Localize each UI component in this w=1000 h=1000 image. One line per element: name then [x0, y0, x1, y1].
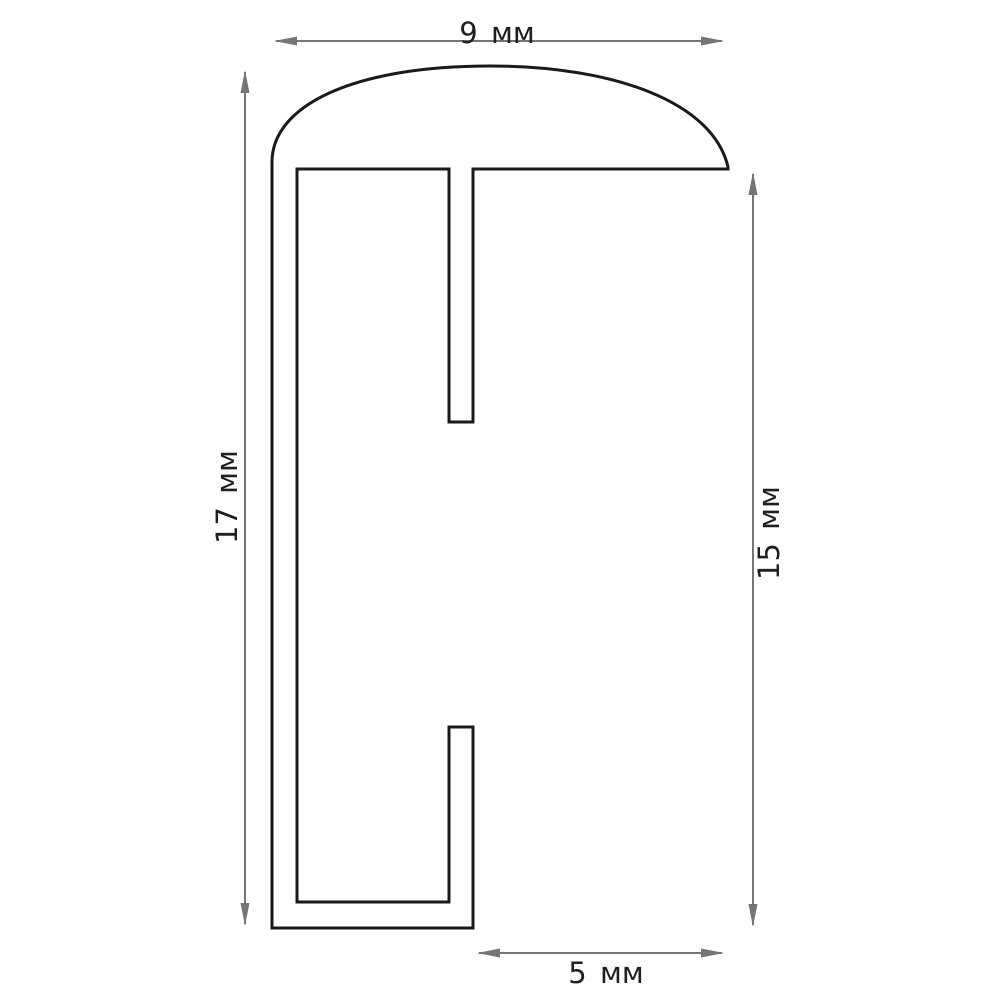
arrowhead-left-icon [274, 37, 297, 46]
dimension-right-height: 15 мм [749, 172, 787, 927]
arrowhead-down-icon [241, 903, 250, 926]
arrowhead-up-icon [241, 70, 250, 93]
dimension-left-height-label: 17 мм [210, 450, 244, 544]
dimension-left-height: 17 мм [210, 70, 250, 926]
dimension-right-height-label: 15 мм [752, 486, 786, 580]
arrowhead-up-icon [749, 172, 758, 195]
technical-drawing-svg: 9 мм 17 мм 15 мм 5 мм [0, 0, 1000, 1000]
drawing-canvas: 9 мм 17 мм 15 мм 5 мм [0, 0, 1000, 1000]
dimension-bottom-width: 5 мм [477, 949, 724, 991]
dimension-top-width-label: 9 мм [459, 16, 534, 50]
dimension-bottom-width-label: 5 мм [568, 956, 643, 990]
arrowhead-down-icon [749, 904, 758, 927]
arrowhead-left-icon [477, 949, 500, 958]
profile-outline [272, 66, 728, 928]
arrowhead-right-icon [701, 949, 724, 958]
dimension-top-width: 9 мм [274, 16, 724, 50]
arrowhead-right-icon [701, 37, 724, 46]
